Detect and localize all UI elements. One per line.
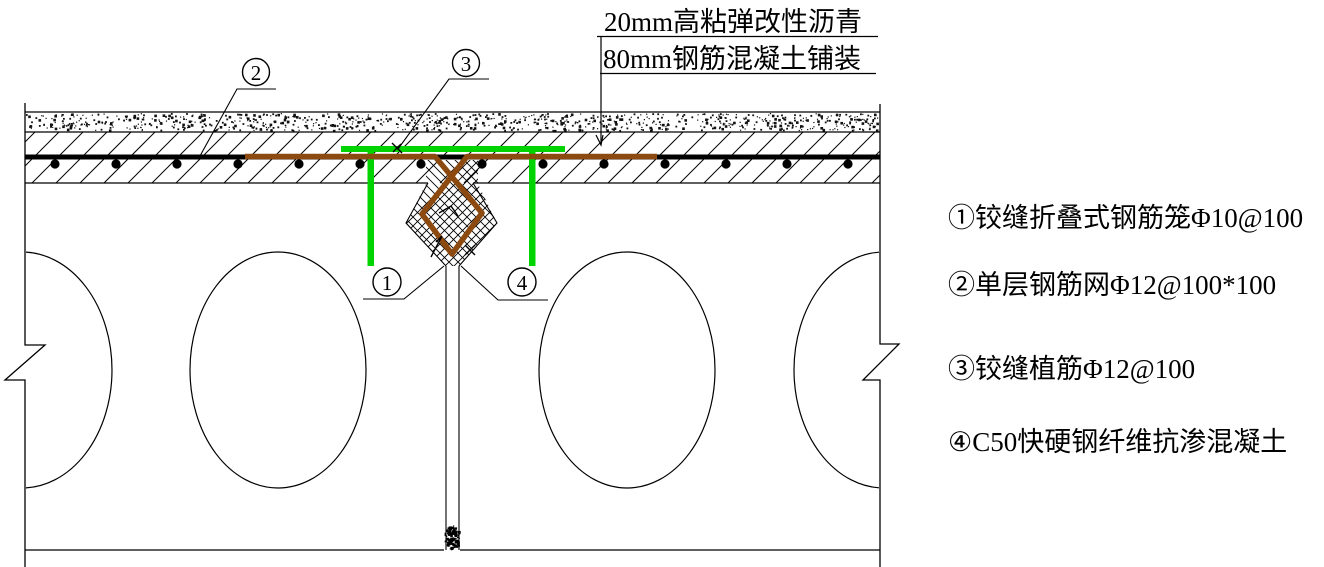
- void-ellipse-2: [190, 252, 366, 488]
- callout-bubbles: 2 3 1 4: [243, 50, 537, 297]
- planted-rebar-right-vertical: [529, 152, 536, 266]
- legend-item-1: ①铰缝折叠式钢筋笼Φ10@100: [948, 203, 1303, 233]
- callout-number-4: 4: [517, 271, 528, 295]
- callout-number-2: 2: [251, 61, 262, 85]
- material-label-asphalt: 20mm高粘弹改性沥青: [604, 7, 862, 37]
- leader-callout-1: [363, 266, 444, 299]
- joint-seal-blob: [445, 525, 461, 550]
- rebar-mesh-line: [25, 155, 880, 160]
- break-line-left: [5, 103, 45, 567]
- legend-item-4: ④C50快硬钢纤维抗渗混凝土: [948, 427, 1287, 457]
- leader-callout-4: [461, 266, 548, 300]
- legend-item-3: ③铰缝植筋Φ12@100: [948, 354, 1195, 384]
- callout-number-3: 3: [461, 52, 472, 76]
- callout-number-1: 1: [382, 271, 393, 295]
- planted-rebar-left-vertical: [368, 152, 375, 266]
- void-ellipse-3: [539, 252, 715, 488]
- material-labels: 20mm高粘弹改性沥青 80mm钢筋混凝土铺装: [603, 7, 862, 74]
- drawing-canvas: 20mm高粘弹改性沥青 80mm钢筋混凝土铺装 2 3 1 4 ①铰缝折叠式钢筋…: [0, 0, 1324, 567]
- void-ellipses: [0, 252, 974, 488]
- planted-rebar-horizontal: [341, 146, 565, 152]
- legend-item-2: ②单层钢筋网Φ12@100*100: [948, 270, 1276, 300]
- void-ellipse-4: [794, 252, 974, 488]
- break-line-right: [863, 104, 899, 567]
- asphalt-layer-stipple: [26, 113, 881, 133]
- leader-callout-2: [200, 89, 276, 156]
- material-label-concrete: 80mm钢筋混凝土铺装: [603, 44, 861, 74]
